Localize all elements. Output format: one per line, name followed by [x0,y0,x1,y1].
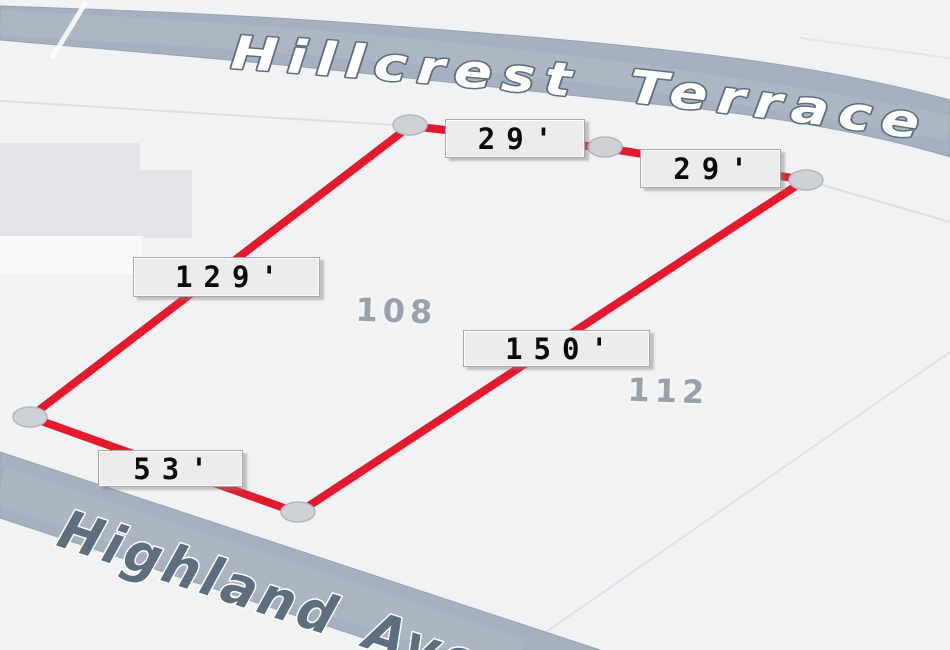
parcel-number-112: 112 [627,371,710,412]
measurement-label-53: 53' [98,450,243,487]
map-view[interactable]: Hillcrest Terrace Highland Ave 108 112 2… [0,0,950,650]
measurement-vertex-handle[interactable] [393,115,427,135]
measurement-vertex-handle[interactable] [588,137,622,157]
building-footprint [0,143,140,174]
map-svg: Hillcrest Terrace Highland Ave 108 112 [0,0,950,650]
measurement-label-150: 150' [463,330,650,367]
measurement-label-29-second: 29' [640,149,781,188]
measurement-vertex-handle[interactable] [789,170,823,190]
measurement-label-129: 129' [133,257,320,297]
building-footprint [0,236,143,274]
measurement-vertex-handle[interactable] [13,407,47,427]
building-footprint [0,170,192,238]
measurement-vertex-handle[interactable] [281,502,315,522]
parcel-number-108: 108 [355,291,438,332]
measurement-label-29-first: 29' [445,119,585,158]
